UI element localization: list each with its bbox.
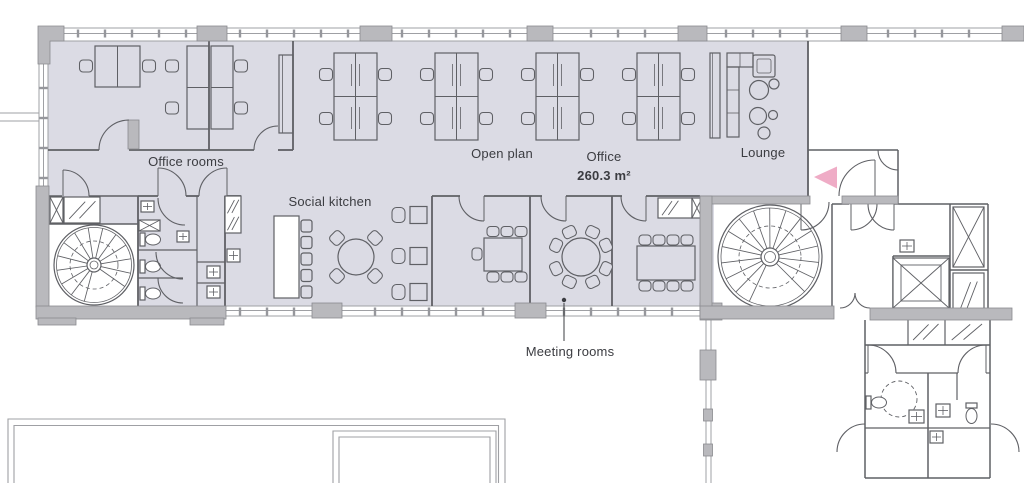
wall-segment xyxy=(700,306,834,319)
sink-icon xyxy=(141,201,154,212)
wall-segment xyxy=(527,26,553,41)
elevators xyxy=(893,207,984,318)
chair-icon xyxy=(515,227,527,237)
chair-icon xyxy=(515,272,527,282)
sink-icon xyxy=(909,410,924,423)
wall-segment xyxy=(36,186,49,307)
sink-icon xyxy=(207,266,220,278)
toilet-icon xyxy=(140,287,161,300)
chair-icon xyxy=(682,113,695,125)
wall-segment xyxy=(841,26,867,41)
chair-icon xyxy=(421,69,434,81)
chair-icon xyxy=(667,281,679,291)
sink-icon xyxy=(177,231,189,242)
chair-icon xyxy=(653,235,665,245)
shaft-icon xyxy=(953,207,984,267)
toilet-icon xyxy=(966,403,977,424)
sink-icon xyxy=(900,240,914,252)
terrace-outline xyxy=(8,419,505,483)
wall-segment xyxy=(700,196,810,204)
chair-icon xyxy=(235,102,248,114)
chair-icon xyxy=(166,102,179,114)
armchair-icon xyxy=(392,249,405,264)
label-social_kitchen: Social kitchen xyxy=(288,194,371,209)
wall-segment xyxy=(700,350,716,380)
chair-icon xyxy=(421,113,434,125)
toilet-icon xyxy=(140,233,161,246)
chair-icon xyxy=(639,281,651,291)
spiral-stair xyxy=(718,205,822,309)
armchair-icon xyxy=(392,285,405,300)
sink-icon xyxy=(936,404,950,417)
chair-icon xyxy=(80,60,93,72)
chair-icon xyxy=(320,69,333,81)
toilet-icon xyxy=(866,396,887,409)
wall-segment xyxy=(870,308,1012,320)
wall-segment xyxy=(312,303,342,318)
wall-segment xyxy=(842,196,898,204)
shaft-icon xyxy=(50,197,63,223)
chair-icon xyxy=(682,69,695,81)
wall-segment xyxy=(190,318,224,325)
chair-icon xyxy=(623,69,636,81)
wall-segment xyxy=(704,444,713,456)
chair-icon xyxy=(480,113,493,125)
wall-segment xyxy=(38,318,76,325)
chair-icon xyxy=(522,113,535,125)
floor-plan-page: Office roomsOpen planOffice260.3 m²Loung… xyxy=(0,0,1024,483)
chair-icon xyxy=(143,60,156,72)
label-meeting_rooms: Meeting rooms xyxy=(526,344,615,359)
label-office: Office xyxy=(587,149,622,164)
label-office_area: 260.3 m² xyxy=(577,168,631,183)
label-open_plan: Open plan xyxy=(471,146,533,161)
wall-segment xyxy=(360,26,392,41)
chair-icon xyxy=(522,69,535,81)
chair-icon xyxy=(653,281,665,291)
chair-icon xyxy=(681,235,693,245)
wall-segment xyxy=(678,26,707,41)
wall-segment xyxy=(515,303,546,318)
chair-icon xyxy=(501,227,513,237)
wall-segment xyxy=(197,26,227,41)
chair-icon xyxy=(581,69,594,81)
chair-icon xyxy=(320,113,333,125)
chair-icon xyxy=(639,235,651,245)
wall-segment xyxy=(700,196,712,316)
chair-icon xyxy=(480,69,493,81)
sink-icon xyxy=(930,431,943,443)
leader-dot xyxy=(562,298,566,302)
label-lounge: Lounge xyxy=(741,145,786,160)
chair-icon xyxy=(166,60,179,72)
chair-icon xyxy=(623,113,636,125)
sink-icon xyxy=(227,249,240,262)
sink-icon xyxy=(207,286,220,298)
chair-icon xyxy=(681,281,693,291)
chair-icon xyxy=(379,113,392,125)
chair-icon xyxy=(667,235,679,245)
wall-segment xyxy=(1002,26,1024,41)
chair-icon xyxy=(487,227,499,237)
wall-segment xyxy=(36,306,226,319)
chair-icon xyxy=(472,248,482,260)
floor-plan: Office roomsOpen planOffice260.3 m²Loung… xyxy=(0,0,1024,483)
chair-icon xyxy=(235,60,248,72)
entrance-arrow-icon xyxy=(814,167,837,189)
chair-icon xyxy=(501,272,513,282)
label-office_rooms: Office rooms xyxy=(148,154,224,169)
wall-segment xyxy=(704,409,713,421)
chair-icon xyxy=(379,69,392,81)
chair-icon xyxy=(581,113,594,125)
chair-icon xyxy=(487,272,499,282)
armchair-icon xyxy=(392,208,405,223)
